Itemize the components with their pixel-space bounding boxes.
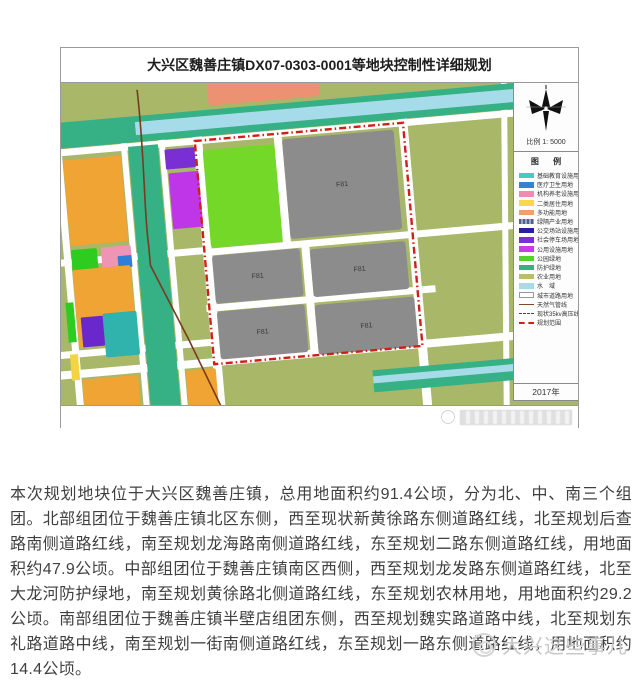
scale-label: 比例 1: 5000 xyxy=(514,137,578,147)
legend-item: 机构养老设施用地 xyxy=(519,189,578,198)
legend-item: 医疗卫生用地 xyxy=(519,180,578,189)
block-education xyxy=(102,311,140,358)
legend-swatch xyxy=(519,237,534,243)
legend-swatch xyxy=(519,173,534,179)
legend-item: 多功能用地 xyxy=(519,208,578,217)
legend-item: 社会停车场用地 xyxy=(519,235,578,244)
legend-item: 城市道路用地 xyxy=(519,290,578,299)
legend-swatch xyxy=(519,210,534,216)
legend-item: 水 域 xyxy=(519,281,578,290)
legend-swatch xyxy=(519,265,534,271)
legend-divider xyxy=(514,151,578,152)
figure-bottom-strip xyxy=(61,405,578,428)
legend-label: 机构养老设施用地 xyxy=(537,189,578,198)
legend-label: 现状35kv高压线 xyxy=(537,309,578,318)
block-label: F81 xyxy=(256,328,269,336)
block-park-green xyxy=(203,144,283,248)
legend-label: 公用设施用地 xyxy=(537,245,573,254)
legend-item: 公交场站设施用地 xyxy=(519,226,578,235)
block-residential-4 xyxy=(186,368,221,405)
legend-swatch xyxy=(519,256,534,262)
legend-swatch xyxy=(519,219,534,225)
legend-label: 防护绿地 xyxy=(537,263,561,272)
legend-item: 绿隔产业用地 xyxy=(519,217,578,226)
legend-swatch xyxy=(519,274,534,280)
legend-label: 绿隔产业用地 xyxy=(537,217,573,226)
legend-label: 公交场站设施用地 xyxy=(537,226,578,235)
legend-swatch xyxy=(519,191,534,197)
block-transit-station xyxy=(164,147,196,170)
plan-map-figure[interactable]: 大兴区魏善庄镇DX07-0303-0001等地块控制性详细规划 xyxy=(60,47,579,428)
legend-label: 基础教育设施用地 xyxy=(537,171,578,180)
legend-item: 公用设施用地 xyxy=(519,245,578,254)
legend-label: 社会停车场用地 xyxy=(537,235,578,244)
legend-item: 公园绿地 xyxy=(519,254,578,263)
legend-label: 二类居住用地 xyxy=(537,199,573,208)
legend-swatch xyxy=(519,182,534,188)
north-arrow xyxy=(514,83,578,135)
stamp-logo-icon xyxy=(441,410,455,424)
footer-logo-icon xyxy=(472,633,496,657)
legend-swatch xyxy=(519,292,534,298)
legend-swatch xyxy=(519,322,534,324)
legend-swatch xyxy=(519,228,534,234)
map-drawing: F81 F81 F81 F81 F81 xyxy=(61,83,578,405)
stamp-watermark xyxy=(460,410,572,425)
legend-item: 基础教育设施用地 xyxy=(519,171,578,180)
legend-swatch xyxy=(519,313,534,314)
block-residential-1 xyxy=(63,156,128,247)
block-parking xyxy=(81,316,106,348)
legend-swatch xyxy=(519,246,534,252)
footer-watermark: 大兴这些事儿 xyxy=(472,630,628,659)
legend-swatch xyxy=(519,283,534,289)
footer-watermark-text: 大兴这些事儿 xyxy=(502,630,628,659)
legend-swatch xyxy=(519,304,534,305)
legend-item: 防护绿地 xyxy=(519,263,578,272)
legend-item: 规划范围 xyxy=(519,318,578,327)
map-title: 大兴区魏善庄镇DX07-0303-0001等地块控制性详细规划 xyxy=(61,48,578,83)
legend-label: 多功能用地 xyxy=(537,208,567,217)
legend-item: 农业用地 xyxy=(519,272,578,281)
block-label: F81 xyxy=(251,272,264,280)
year-box: 2017年 xyxy=(514,383,578,400)
legend-label: 水 域 xyxy=(537,281,555,290)
legend-label: 规划范围 xyxy=(537,318,561,327)
block-residential-3 xyxy=(82,375,143,405)
block-label: F81 xyxy=(353,266,366,274)
legend-item: 现状35kv高压线 xyxy=(519,309,578,318)
block-label: F81 xyxy=(336,181,349,189)
legend-label: 城市道路用地 xyxy=(537,291,573,300)
legend-label: 农业用地 xyxy=(537,272,561,281)
legend-swatch xyxy=(519,200,534,206)
legend-label: 医疗卫生用地 xyxy=(537,180,573,189)
map-canvas: F81 F81 F81 F81 F81 比例 1 xyxy=(61,83,578,405)
legend-rows: 基础教育设施用地 医疗卫生用地 机构养老设施用地 二类居住用地 多功能用地 绿隔… xyxy=(514,170,578,383)
legend-label: 天然气管线 xyxy=(537,300,567,309)
legend-item: 二类居住用地 xyxy=(519,199,578,208)
legend-label: 公园绿地 xyxy=(537,254,561,263)
legend-item: 天然气管线 xyxy=(519,300,578,309)
legend-title: 图 例 xyxy=(514,156,578,167)
legend-panel: 比例 1: 5000 图 例 基础教育设施用地 医疗卫生用地 机构养老设施用地 … xyxy=(513,83,578,401)
block-label: F81 xyxy=(360,322,373,330)
